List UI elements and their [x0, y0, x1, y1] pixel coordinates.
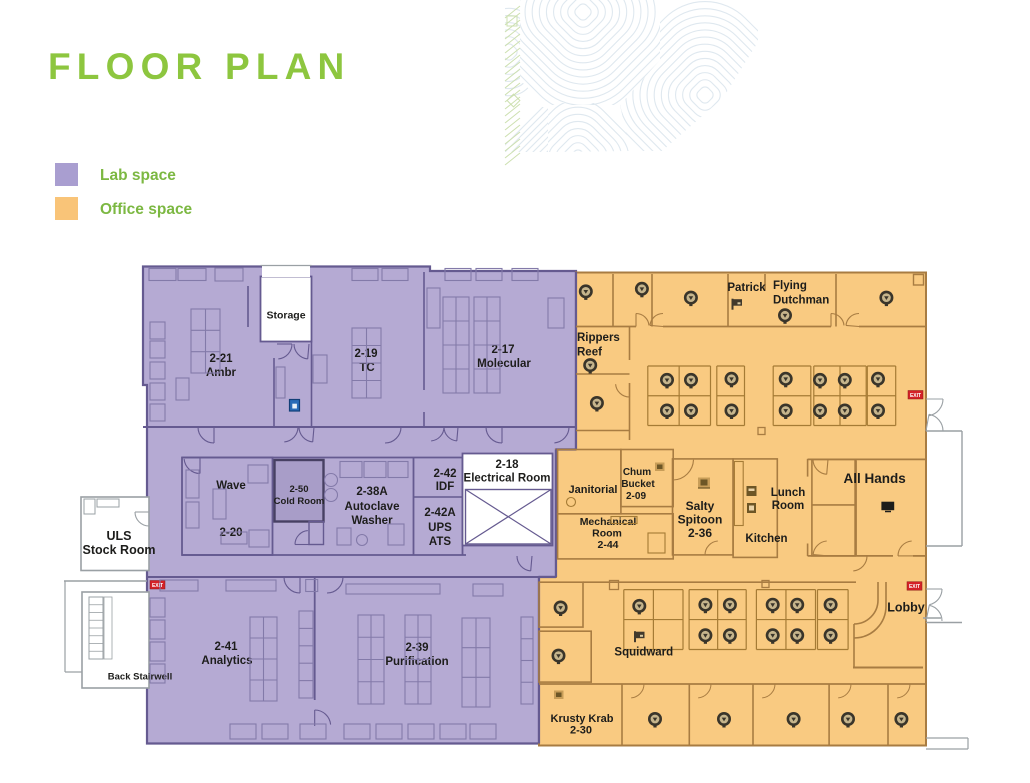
svg-text:2-21: 2-21 — [209, 353, 233, 365]
svg-text:Purification: Purification — [385, 656, 448, 668]
svg-text:Squidward: Squidward — [614, 647, 673, 659]
svg-text:Washer: Washer — [351, 515, 393, 527]
svg-text:Autoclave: Autoclave — [345, 501, 400, 513]
svg-text:Lobby: Lobby — [887, 601, 925, 615]
svg-text:ULS: ULS — [107, 529, 132, 543]
svg-text:Storage: Storage — [266, 310, 305, 322]
svg-text:Cold Room: Cold Room — [274, 496, 325, 507]
svg-text:Lab space: Lab space — [100, 167, 176, 184]
svg-text:Electrical Room: Electrical Room — [464, 473, 551, 485]
svg-text:Kitchen: Kitchen — [745, 533, 787, 545]
svg-text:EXIT: EXIT — [909, 584, 920, 590]
svg-text:2-41: 2-41 — [214, 641, 238, 653]
svg-text:FLOOR PLAN: FLOOR PLAN — [48, 46, 350, 87]
svg-text:2-42A: 2-42A — [424, 507, 455, 519]
svg-text:2-20: 2-20 — [219, 527, 242, 539]
svg-text:Patrick: Patrick — [727, 282, 766, 294]
svg-text:Office space: Office space — [100, 201, 193, 218]
svg-text:Wave: Wave — [216, 480, 246, 492]
svg-text:Back Stairwell: Back Stairwell — [108, 672, 172, 683]
svg-text:EXIT: EXIT — [910, 393, 921, 399]
svg-text:Analytics: Analytics — [201, 655, 252, 667]
svg-text:Rippers: Rippers — [577, 332, 620, 344]
svg-text:Krusty Krab: Krusty Krab — [551, 713, 614, 725]
svg-text:Room: Room — [592, 528, 622, 540]
svg-text:Salty: Salty — [686, 499, 715, 513]
svg-text:2-36: 2-36 — [688, 526, 712, 540]
svg-text:2-50: 2-50 — [289, 484, 308, 495]
svg-text:Room: Room — [772, 500, 805, 512]
svg-text:Janitorial: Janitorial — [569, 484, 618, 496]
svg-text:Lunch: Lunch — [771, 487, 806, 499]
svg-text:EXIT: EXIT — [152, 583, 163, 589]
svg-text:2-42: 2-42 — [433, 468, 456, 480]
svg-text:2-18: 2-18 — [495, 459, 519, 471]
svg-text:Bucket: Bucket — [621, 479, 655, 490]
svg-text:Dutchman: Dutchman — [773, 295, 829, 307]
svg-text:2-30: 2-30 — [570, 725, 592, 737]
svg-text:Mechanical: Mechanical — [580, 516, 637, 528]
svg-text:UPS: UPS — [428, 522, 452, 534]
svg-text:2-39: 2-39 — [405, 642, 428, 654]
svg-text:Chum: Chum — [623, 467, 651, 478]
svg-text:All Hands: All Hands — [843, 471, 905, 486]
svg-text:Spitoon: Spitoon — [678, 513, 723, 527]
svg-text:Molecular: Molecular — [477, 358, 531, 370]
svg-text:2-38A: 2-38A — [356, 486, 387, 498]
svg-text:2-44: 2-44 — [597, 539, 618, 551]
svg-text:Stock Room: Stock Room — [83, 543, 156, 557]
svg-text:Reef: Reef — [577, 347, 602, 359]
svg-text:Flying: Flying — [773, 280, 807, 292]
svg-text:IDF: IDF — [436, 481, 455, 493]
svg-text:ATS: ATS — [429, 536, 451, 548]
svg-text:2-09: 2-09 — [626, 491, 646, 502]
svg-text:2-17: 2-17 — [491, 344, 514, 356]
